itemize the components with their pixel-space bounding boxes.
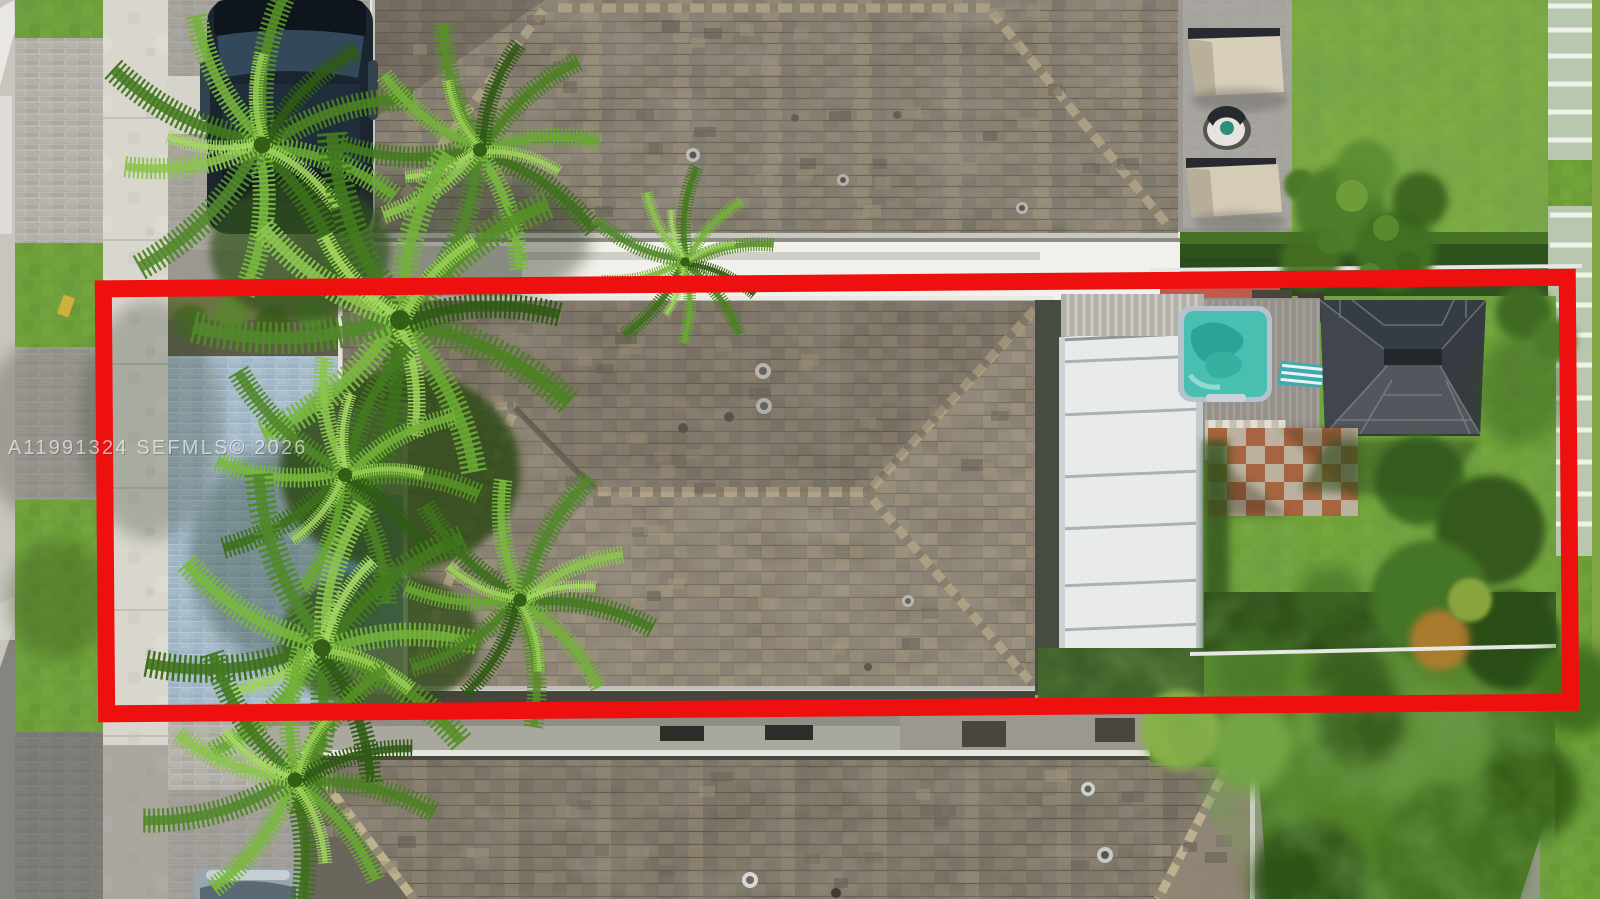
svg-text:A11991324 SEFMLS© 2026: A11991324 SEFMLS© 2026: [8, 437, 308, 459]
